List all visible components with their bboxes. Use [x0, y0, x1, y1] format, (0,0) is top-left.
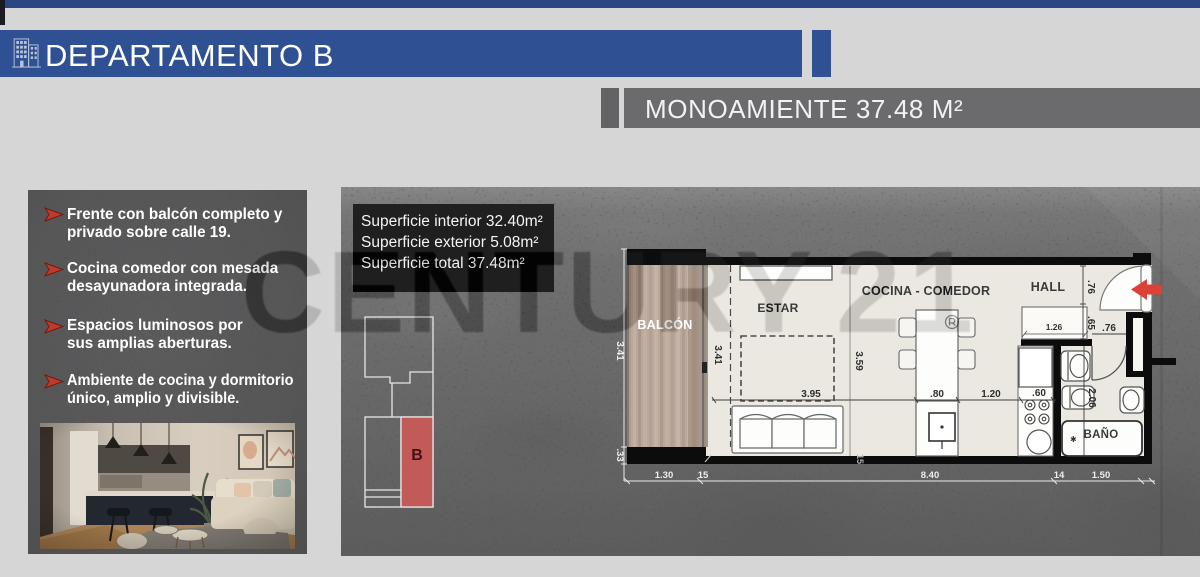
svg-text:HALL: HALL: [1031, 280, 1066, 294]
svg-text:✱: ✱: [1070, 435, 1077, 444]
svg-text:.33: .33: [614, 448, 625, 461]
svg-text:CENTURY: CENTURY: [241, 227, 815, 357]
svg-text:15: 15: [855, 454, 865, 464]
svg-text:B: B: [411, 447, 423, 464]
svg-text:.76: .76: [1102, 323, 1116, 334]
svg-text:.60: .60: [1032, 388, 1046, 399]
svg-text:BAÑO: BAÑO: [1083, 428, 1118, 441]
svg-text:2.06: 2.06: [1086, 388, 1097, 408]
svg-text:1.26: 1.26: [1046, 322, 1063, 332]
svg-text:.80: .80: [930, 389, 944, 400]
svg-text:3.95: 3.95: [801, 389, 821, 400]
svg-text:21: 21: [836, 227, 981, 357]
svg-text:1.30: 1.30: [655, 470, 674, 481]
svg-text:.65: .65: [1085, 316, 1096, 330]
svg-text:8.40: 8.40: [921, 470, 940, 481]
svg-text:15: 15: [698, 470, 709, 481]
svg-text:1.20: 1.20: [981, 389, 1001, 400]
svg-text:1.50: 1.50: [1092, 470, 1111, 481]
svg-text:14: 14: [1054, 470, 1065, 481]
svg-text:.76: .76: [1085, 280, 1096, 294]
